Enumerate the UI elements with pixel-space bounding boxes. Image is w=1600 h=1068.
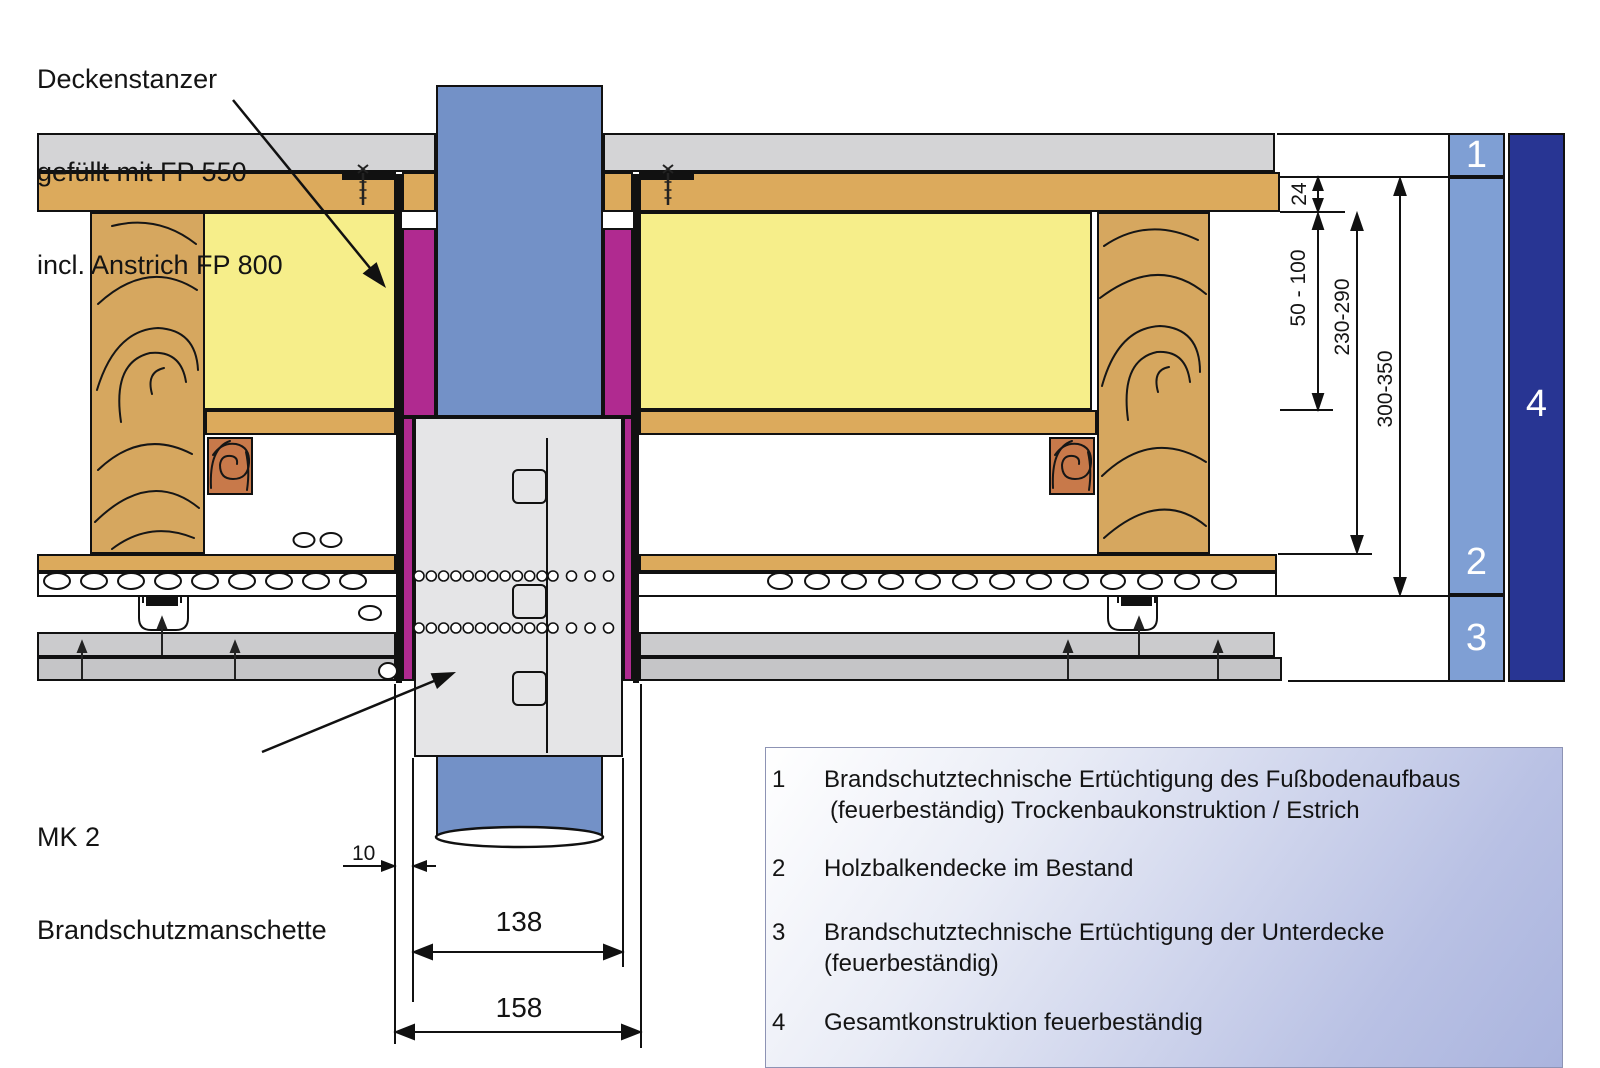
steel-angle-right-vertical	[633, 174, 639, 683]
legend-item-1: 1 Brandschutztechnische Ertüchtigung des…	[766, 764, 1460, 826]
legend-item-3: 3 Brandschutztechnische Ertüchtigung der…	[766, 917, 1384, 979]
annotation-line: Brandschutzmanschette	[37, 915, 327, 946]
marker-label-4: 4	[1508, 382, 1565, 426]
plasterboard-2-right	[639, 657, 1282, 681]
resilient-channel-left	[139, 595, 188, 630]
wood-board-layer-right	[639, 172, 1280, 212]
plasterboard-1-right	[639, 632, 1275, 657]
wood-board-block-left	[402, 172, 436, 212]
lath-layer-left	[37, 554, 396, 572]
legend-item-text: (feuerbeständig)	[824, 948, 1384, 979]
batten-block-left	[207, 437, 253, 495]
dim-label-230-290: 230-290	[1331, 252, 1355, 382]
marker-box-2	[1448, 177, 1505, 595]
insulation-right	[639, 212, 1092, 410]
construction-detail-diagram: 1 2 3 4 Deckenstanzer gefüllt mit FP 550…	[0, 0, 1600, 1068]
legend-item-number: 1	[766, 764, 824, 826]
board-under-insulation-right	[639, 410, 1097, 435]
steel-angle-left-flange	[342, 174, 402, 180]
plasterboard-1-left	[37, 632, 396, 657]
dim-label-50-100: 50 - 100	[1287, 223, 1311, 353]
dim-label-10: 10	[352, 842, 375, 866]
fire-fill-right-lower	[623, 417, 633, 681]
pipe-upper	[436, 85, 603, 417]
annotation-line: incl. Anstrich FP 800	[37, 250, 283, 281]
screed-layer-right	[603, 133, 1275, 172]
wood-beam-right	[1097, 212, 1210, 554]
legend-item-text: Holzbalkendecke im Bestand	[824, 853, 1134, 884]
resilient-channel-right	[1108, 595, 1157, 630]
marker-label-2: 2	[1448, 540, 1505, 584]
legend-item-text: (feuerbeständig) Trockenbaukonstruktion …	[824, 795, 1460, 826]
legend-item-number: 3	[766, 917, 824, 979]
legend-panel: 1 Brandschutztechnische Ertüchtigung des…	[765, 747, 1563, 1068]
dim-label-158: 158	[459, 992, 579, 1024]
legend-item-text: Brandschutztechnische Ertüchtigung der U…	[824, 917, 1384, 948]
reed-plaster-strip-right	[639, 572, 1277, 597]
marker-label-1: 1	[1448, 134, 1505, 176]
fire-collar-body	[414, 417, 623, 757]
legend-item-4: 4 Gesamtkonstruktion feuerbeständig	[766, 1007, 1203, 1038]
legend-item-text: Gesamtkonstruktion feuerbeständig	[824, 1007, 1203, 1038]
board-under-insulation-left	[205, 410, 396, 435]
wood-board-block-right	[603, 172, 633, 212]
fire-fill-left-lower	[402, 417, 414, 681]
lath-layer-right	[639, 554, 1277, 572]
legend-item-2: 2 Holzbalkendecke im Bestand	[766, 853, 1134, 884]
annotation-line: Deckenstanzer	[37, 64, 283, 95]
dim-label-300-350: 300-350	[1374, 324, 1398, 454]
annotation-manschette: MK 2 Brandschutzmanschette	[37, 760, 327, 1008]
steel-angle-left-vertical	[396, 174, 402, 683]
plasterboard-2-left	[37, 657, 396, 681]
fire-fill-right-upper	[603, 228, 633, 417]
batten-block-right	[1049, 437, 1095, 495]
steel-angle-right-flange	[633, 174, 694, 180]
annotation-line: MK 2	[37, 822, 327, 853]
marker-label-3: 3	[1448, 616, 1505, 660]
legend-item-number: 2	[766, 853, 824, 884]
reed-plaster-strip-left	[37, 572, 396, 597]
legend-item-text: Brandschutztechnische Ertüchtigung des F…	[824, 764, 1460, 795]
annotation-line: gefüllt mit FP 550	[37, 157, 283, 188]
annotation-deckenstanzer: Deckenstanzer gefüllt mit FP 550 incl. A…	[37, 2, 283, 343]
fire-fill-left-upper	[402, 228, 436, 417]
legend-item-number: 4	[766, 1007, 824, 1038]
pipe-lower	[436, 757, 603, 837]
dim-label-138: 138	[459, 906, 579, 938]
